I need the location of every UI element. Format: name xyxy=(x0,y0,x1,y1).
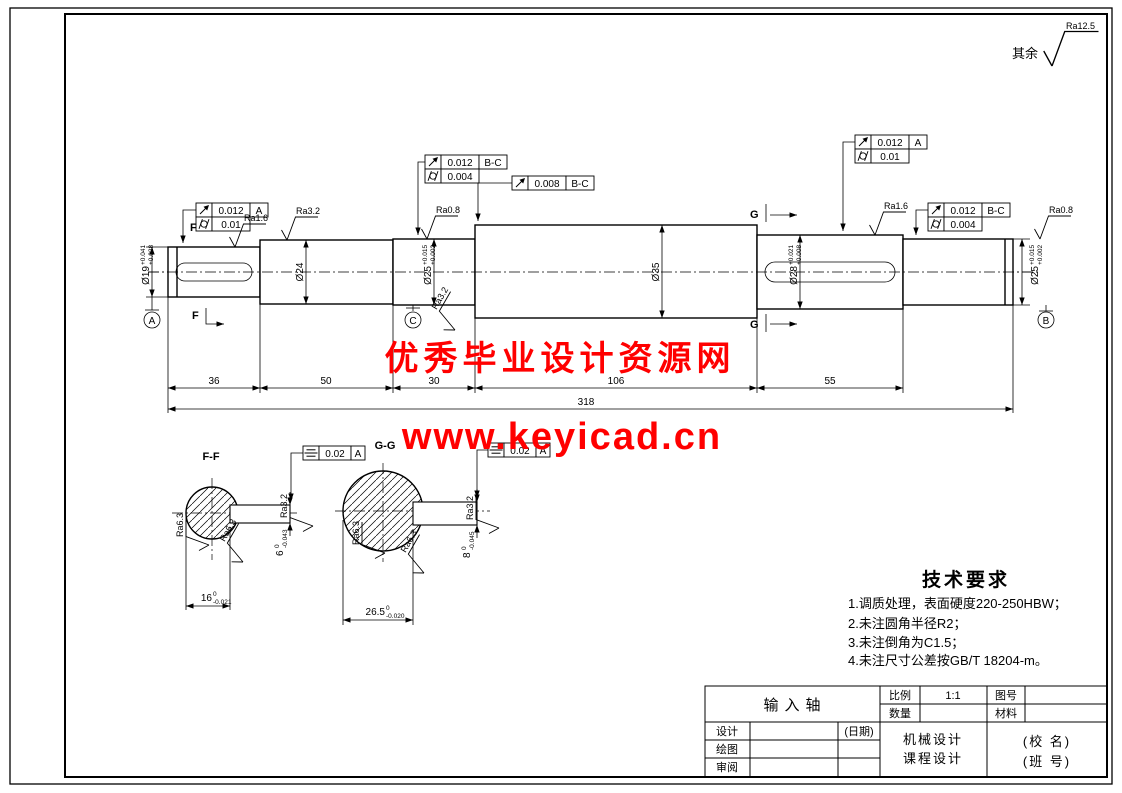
section-ff: F-F 0.02 A Ra3.2 6 0 -0.043 Ra6.3 Ra6.3 xyxy=(172,446,365,610)
shaft-segment-d25-right xyxy=(903,239,1013,305)
drawing-sheet: 其余 Ra12.5 Ø19 +0.041 +0.028 xyxy=(0,0,1122,793)
tol-datum: B-C xyxy=(571,179,588,190)
tech-requirements: 技术要求 1.调质处理，表面硬度220-250HBW； 2.未注圆角半径R2； … xyxy=(848,568,1067,668)
dia-tol-sup: +0.041 xyxy=(140,245,147,265)
roughness-icon xyxy=(422,216,459,239)
roughness-value: Ra3.2 xyxy=(296,206,320,216)
roughness-value: Ra3.2 xyxy=(465,496,475,520)
section-title: G-G xyxy=(375,440,396,452)
date-label: (日期) xyxy=(844,725,873,738)
roughness-seg3: Ra0.8 xyxy=(422,205,461,239)
roughness-value: Ra6.3 xyxy=(175,513,185,537)
material-label: 材料 xyxy=(995,706,1017,720)
dia-label: Ø19 xyxy=(141,266,152,285)
roughness-seg5: Ra1.6 xyxy=(870,201,909,235)
course-name-line1: 机械设计 xyxy=(903,732,963,747)
dia-tol-sub: +0.008 xyxy=(796,245,803,265)
class-no: (班 号) xyxy=(1023,754,1071,769)
tech-item: 2.未注圆角半径R2； xyxy=(848,616,966,632)
tech-item: 4.未注尺寸公差按GB/T 18204-m。 xyxy=(848,653,1048,668)
tol-frame-2: 0.012 B-C 0.004 xyxy=(418,155,507,235)
dim-sub: -0.043 xyxy=(282,529,289,548)
shaft-segment-d35 xyxy=(475,225,757,318)
tol-frame-5: 0.012 B-C 0.004 xyxy=(916,203,1010,235)
tol-value: 0.01 xyxy=(221,220,241,231)
review-label: 审阅 xyxy=(716,760,738,774)
roughness-value: Ra3.2 xyxy=(279,494,289,518)
len-50: 50 xyxy=(320,376,332,387)
tol-datum: B-C xyxy=(987,206,1004,217)
datum-letter: B xyxy=(1043,316,1050,327)
tol-value: 0.01 xyxy=(880,152,900,163)
section-letter: F xyxy=(192,310,199,322)
roughness-icon xyxy=(870,212,907,235)
dia-tol-sup: +0.021 xyxy=(788,245,795,265)
qty-label: 数量 xyxy=(889,707,911,720)
course-name-line2: 课程设计 xyxy=(903,751,963,766)
dim-sup: 0 xyxy=(386,605,390,612)
tol-value: 0.012 xyxy=(950,206,975,217)
dim-sup: 0 xyxy=(213,591,217,598)
dim-sub: -0.045 xyxy=(469,531,476,550)
section-letter: G xyxy=(750,209,759,221)
design-label: 设计 xyxy=(716,725,738,738)
roughness-value: Ra0.8 xyxy=(1049,205,1073,215)
tol-value: 0.02 xyxy=(325,449,345,460)
dim-d19: Ø19 +0.041 +0.028 xyxy=(140,245,168,297)
section-letter: G xyxy=(750,319,759,331)
datum-letter: C xyxy=(409,316,416,327)
dim-value: 6 xyxy=(275,550,286,556)
roughness-value: Ra0.8 xyxy=(436,205,460,215)
tech-title: 技术要求 xyxy=(922,568,1010,591)
tol-datum: B-C xyxy=(484,158,501,169)
roughness-seg2: Ra3.2 xyxy=(282,206,321,240)
roughness-value: Ra1.6 xyxy=(884,201,908,211)
tech-item: 3.未注倒角为C1.5； xyxy=(848,635,964,651)
title-block-text: 输入轴 比例 1:1 图号 数量 材料 设计 (日期) 绘图 审阅 机械设计 课… xyxy=(716,688,1071,774)
section-title: F-F xyxy=(202,451,219,463)
tol-frame-3: 0.008 B-C xyxy=(478,176,594,221)
roughness-value: Ra1.6 xyxy=(244,213,268,223)
dia-tol-sub: +0.028 xyxy=(148,245,155,265)
dia-label: Ø25 xyxy=(423,266,434,285)
section-gg: G-G 0.02 A Ra3.2 8 0 -0.045 Ra6.3 Ra6.3 xyxy=(335,440,550,625)
draw-label: 绘图 xyxy=(716,742,738,756)
dim-sub: -0.021 xyxy=(213,599,232,606)
dia-label: Ø28 xyxy=(789,266,800,285)
general-roughness-value: Ra12.5 xyxy=(1066,21,1095,31)
len-36: 36 xyxy=(208,376,220,387)
general-roughness-prefix: 其余 xyxy=(1012,46,1038,61)
dia-label: Ø25 xyxy=(1030,266,1041,285)
datum-a: A xyxy=(144,297,160,328)
drawing-no-label: 图号 xyxy=(995,689,1017,702)
datum-b: B xyxy=(1038,305,1054,328)
dia-tol-sub: +0.002 xyxy=(1037,245,1044,265)
tol-frame-4: 0.012 A 0.01 xyxy=(843,135,927,231)
dim-sub: -0.020 xyxy=(386,613,405,620)
dia-tol-sub: +0.002 xyxy=(430,245,437,265)
dia-tol-sup: +0.015 xyxy=(1029,245,1036,265)
part-name: 输入轴 xyxy=(763,697,826,714)
dia-label: Ø24 xyxy=(295,262,306,281)
tol-value: 0.012 xyxy=(447,158,472,169)
tech-item: 1.调质处理，表面硬度220-250HBW； xyxy=(848,596,1067,612)
school-name: (校 名) xyxy=(1023,734,1071,749)
len-55: 55 xyxy=(824,376,836,387)
dia-tol-sup: +0.015 xyxy=(422,245,429,265)
watermark-url: www.keyicad.cn xyxy=(401,416,722,458)
general-roughness-note: 其余 Ra12.5 xyxy=(1012,21,1099,66)
roughness-icon xyxy=(1044,32,1099,67)
tol-datum: A xyxy=(355,449,362,460)
roughness-seg6: Ra0.8 xyxy=(1035,205,1074,239)
tol-value: 0.004 xyxy=(950,220,975,231)
tol-value: 0.012 xyxy=(877,138,902,149)
roughness-value: Ra6.3 xyxy=(351,521,361,545)
dim-value: 8 xyxy=(462,552,473,558)
roughness-gg-side: Ra3.2 xyxy=(465,496,499,534)
tol-value: 0.008 xyxy=(534,179,559,190)
dim-value: 16 xyxy=(201,593,213,604)
roughness-icon xyxy=(1035,216,1072,239)
watermark-site-name: 优秀毕业设计资源网 xyxy=(385,340,736,378)
roughness-icon xyxy=(476,497,499,534)
roughness-icon xyxy=(282,217,319,240)
scale-label: 比例 xyxy=(889,688,911,702)
dim-sup: 0 xyxy=(274,544,281,548)
section-letter: F xyxy=(190,222,197,234)
dim-value: 26.5 xyxy=(366,607,386,618)
dim-sup: 0 xyxy=(461,546,468,550)
len-total-318: 318 xyxy=(578,397,595,408)
tol-value: 0.004 xyxy=(447,172,472,183)
tol-datum: A xyxy=(915,138,922,149)
datum-c: C xyxy=(405,305,421,328)
datum-letter: A xyxy=(149,316,156,327)
dia-label: Ø35 xyxy=(651,262,662,281)
scale-value: 1:1 xyxy=(945,690,960,702)
tol-value: 0.012 xyxy=(218,206,243,217)
